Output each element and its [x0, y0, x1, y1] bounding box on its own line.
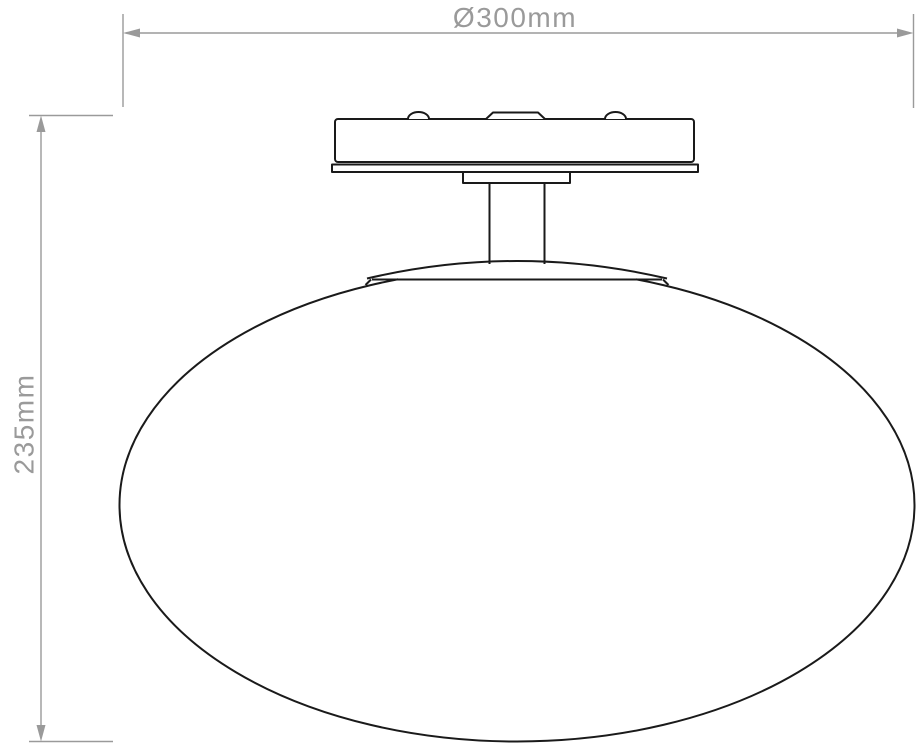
mounting-plate [335, 119, 694, 162]
screw-bump-right [605, 112, 626, 119]
globe-outline [120, 269, 915, 742]
stem-collar [463, 172, 570, 183]
globe-neck-tick-right [663, 280, 669, 286]
terminal-block-bump [486, 113, 545, 120]
screw-bump-left [408, 112, 429, 119]
dimension-drawing: Ø300mm 235mm [0, 0, 920, 748]
mounting-flange [332, 165, 698, 173]
width-dim-arrow-right-icon [897, 29, 914, 38]
width-dimension-label: Ø300mm [453, 2, 577, 33]
height-dim-arrow-up-icon [37, 116, 46, 133]
ceiling-light-drawing [120, 112, 915, 742]
globe-neck-tick-left [366, 280, 372, 286]
height-dim-arrow-down-icon [37, 725, 46, 742]
height-dimension-label: 235mm [9, 374, 40, 475]
width-dim-arrow-left-icon [123, 29, 140, 38]
